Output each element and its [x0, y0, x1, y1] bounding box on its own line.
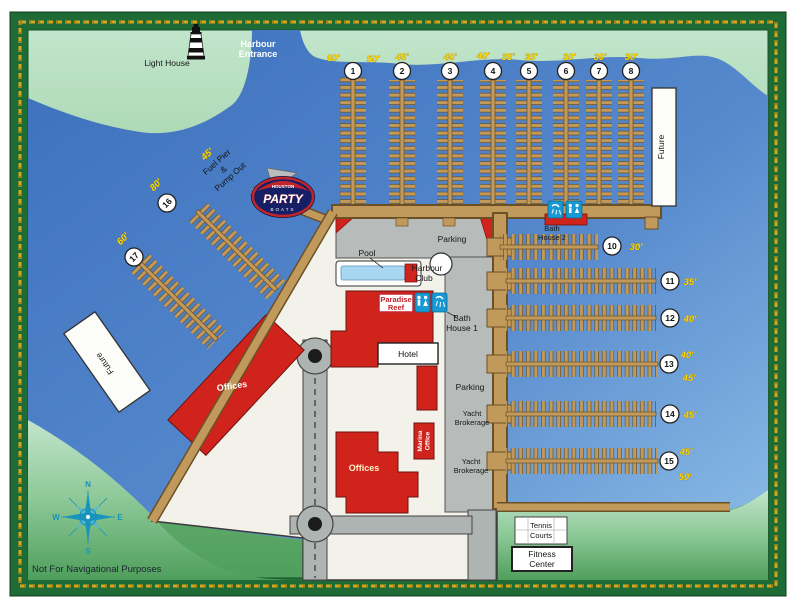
restroom-icon-2: [566, 201, 582, 218]
yacht-brokerage-2-label-a: Yacht: [462, 457, 482, 466]
pier-13: [506, 351, 658, 377]
marina-office-label-1: Marina: [417, 430, 424, 451]
shower-icon-2: [548, 201, 563, 218]
pier-5-badge: 5: [527, 66, 532, 76]
shower-icon: [432, 293, 447, 312]
pier-13-length-bottom: 45': [682, 373, 697, 384]
pier-3-length: 40': [443, 52, 458, 63]
pool: [341, 266, 405, 280]
hotel-label: Hotel: [398, 349, 418, 359]
tennis-courts-label-1: Tennis: [530, 521, 552, 530]
pier-7-badge: 7: [597, 66, 602, 76]
pier-6-length: 30': [563, 52, 577, 63]
pier-7: [586, 80, 612, 207]
parking-east-label: Parking: [456, 382, 485, 392]
pier-8-badge: 8: [629, 66, 634, 76]
roundabout-south-island: [308, 517, 322, 531]
pier-12-length: 40': [683, 314, 698, 325]
yacht-brokerage-1-label-b: Brokerage: [455, 418, 490, 427]
pier-5-length: 35': [525, 52, 539, 63]
harbour-club-label-2: Club: [415, 273, 433, 283]
bath-house-1-label-b: House 1: [446, 323, 478, 333]
pier-10-badge: 10: [607, 241, 617, 251]
harbour-club-label-1: Harbour: [412, 263, 443, 273]
pier-13-length-top: 40': [680, 350, 695, 361]
bath-house-2-label-b: House 2: [538, 233, 566, 242]
marina-office-label-2: Office: [425, 431, 432, 450]
pier-10-length: 30': [630, 242, 644, 253]
pier-1-badge: 1: [351, 66, 356, 76]
pier-4-badge: 4: [491, 66, 496, 76]
tennis-courts: Tennis Courts: [515, 517, 567, 544]
fitness-center: Fitness Center: [512, 547, 572, 571]
pier-7-length: 30': [594, 52, 608, 63]
offices-south-label: Offices: [349, 463, 380, 473]
pier-1: [340, 76, 366, 207]
pier-2-length: 45': [395, 52, 410, 63]
logo-boats: BOATS: [271, 207, 296, 212]
pier-4-length-right: 35': [502, 52, 516, 63]
paradise-reef-sign: Paradise Reef: [379, 294, 413, 312]
pier-15-badge: 15: [664, 456, 674, 466]
pier-6: [553, 80, 579, 207]
pier-1-length-right: 50': [367, 54, 381, 65]
pier-13-badge: 13: [664, 359, 674, 369]
pier-14: [506, 401, 656, 427]
compass-s: S: [85, 547, 91, 556]
parking-north-label: Parking: [438, 234, 467, 244]
restroom-icon: [415, 293, 430, 312]
marina-office-label: Marina Office: [417, 430, 432, 451]
bath-house-1-label-a: Bath: [453, 313, 471, 323]
pier-4-length-left: 40': [476, 51, 491, 62]
pier-11: [506, 268, 656, 294]
pier-15-length-top: 45': [679, 447, 694, 458]
bath-house-2-label-a: Bath: [544, 224, 559, 233]
compass-n: N: [85, 480, 91, 489]
pier-4: [480, 80, 506, 207]
pier-8-length: 30': [625, 52, 639, 63]
fitness-center-label-2: Center: [529, 559, 555, 569]
pier-1-length-left: 60': [327, 53, 341, 64]
harbour-entrance-label-1: Harbour: [240, 39, 276, 49]
logo-party: PARTY: [263, 192, 304, 206]
pier-14-badge: 14: [665, 409, 675, 419]
pier-12-badge: 12: [665, 313, 675, 323]
pier-8: [618, 80, 644, 207]
compass-e: E: [117, 513, 123, 522]
harbour-entrance-label-2: Entrance: [239, 49, 278, 59]
pier-3: [437, 80, 463, 207]
marina-map-page: Future Future 1 60' 50' 2 45' 3 40' 4 40…: [0, 0, 796, 608]
pool-label: Pool: [358, 248, 375, 258]
building-east-wing: [417, 366, 437, 410]
light-house-label: Light House: [144, 58, 190, 68]
future-dock-north: Future: [652, 88, 676, 206]
compass-w: W: [52, 513, 60, 522]
pier-6-badge: 6: [564, 66, 569, 76]
pier-2: [389, 80, 415, 207]
pier-15: [506, 448, 658, 474]
paradise-reef-label-2: Reef: [388, 303, 405, 312]
pier-3-badge: 3: [448, 66, 453, 76]
pier-11-length: 35': [684, 277, 698, 288]
yacht-brokerage-1-label-a: Yacht: [463, 409, 483, 418]
marina-map: Future Future 1 60' 50' 2 45' 3 40' 4 40…: [0, 0, 796, 608]
yacht-brokerage-2-label-b: Brokerage: [454, 466, 489, 475]
dock-l-stub: [645, 217, 658, 229]
future-north-label: Future: [656, 134, 666, 159]
pier-5: [516, 80, 542, 207]
tennis-courts-label-2: Courts: [530, 531, 552, 540]
pier-15-length-bottom: 50': [679, 472, 693, 483]
pier-11-badge: 11: [666, 276, 675, 286]
pier-2-badge: 2: [400, 66, 405, 76]
pier-12: [506, 305, 656, 331]
logo-houston: HOUSTON: [272, 184, 294, 189]
pier-14-length: 45': [683, 410, 698, 421]
disclaimer-text: Not For Navigational Purposes: [32, 564, 162, 575]
roundabout-north-island: [308, 349, 322, 363]
fitness-center-label-1: Fitness: [528, 549, 555, 559]
